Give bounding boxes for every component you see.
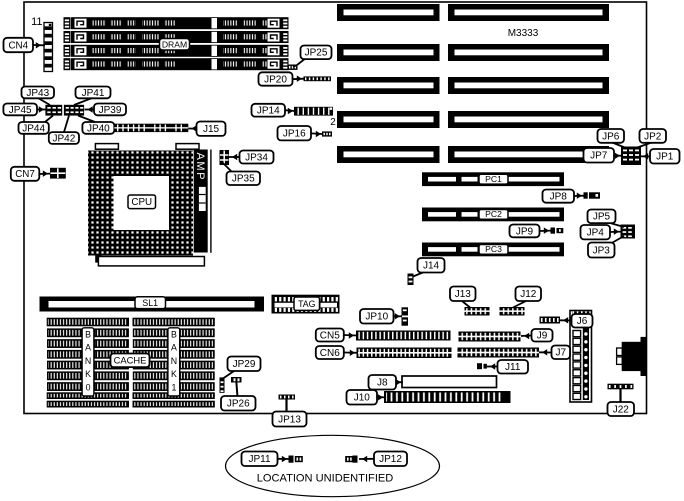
- svg-text:JP45: JP45: [9, 105, 32, 116]
- svg-text:J15: J15: [203, 124, 220, 135]
- svg-text:JP40: JP40: [87, 123, 110, 134]
- svg-text:JP26: JP26: [227, 399, 250, 410]
- svg-text:CN5: CN5: [320, 330, 340, 341]
- svg-text:CPU: CPU: [131, 197, 152, 208]
- svg-text:JP5: JP5: [593, 212, 611, 223]
- svg-text:JP39: JP39: [99, 105, 122, 116]
- svg-text:JP6: JP6: [602, 131, 620, 142]
- svg-text:J11: J11: [505, 362, 521, 373]
- svg-text:TAG: TAG: [298, 299, 316, 309]
- svg-text:JP35: JP35: [232, 174, 255, 185]
- svg-text:B: B: [171, 330, 177, 340]
- svg-text:J8: J8: [377, 378, 388, 389]
- svg-text:JP25: JP25: [305, 48, 328, 59]
- svg-text:J14: J14: [423, 261, 440, 272]
- svg-text:K: K: [85, 369, 91, 379]
- svg-text:JP9: JP9: [516, 226, 534, 237]
- svg-text:K: K: [171, 369, 177, 379]
- svg-text:JP10: JP10: [365, 312, 388, 323]
- svg-text:JP8: JP8: [550, 192, 568, 203]
- svg-text:AMP: AMP: [194, 153, 206, 182]
- svg-text:M3333: M3333: [508, 28, 539, 39]
- svg-text:JP20: JP20: [264, 74, 287, 85]
- svg-text:JP12: JP12: [379, 454, 402, 465]
- svg-text:JP4: JP4: [587, 228, 605, 239]
- svg-text:J13: J13: [455, 289, 472, 300]
- svg-text:JP44: JP44: [22, 123, 45, 134]
- svg-text:JP43: JP43: [26, 88, 49, 99]
- svg-text:JP7: JP7: [590, 151, 608, 162]
- svg-text:J22: J22: [613, 404, 630, 415]
- svg-text:CN7: CN7: [15, 169, 35, 180]
- svg-text:CN6: CN6: [320, 348, 340, 359]
- svg-text:PC1: PC1: [485, 174, 502, 184]
- svg-text:SL1: SL1: [142, 298, 158, 308]
- svg-text:PC2: PC2: [485, 209, 502, 219]
- svg-text:J12: J12: [520, 289, 537, 300]
- svg-text:A: A: [171, 343, 177, 353]
- svg-text:JP29: JP29: [233, 359, 256, 370]
- svg-text:N: N: [171, 356, 177, 366]
- svg-text:JP2: JP2: [644, 131, 662, 142]
- svg-text:JP42: JP42: [53, 133, 76, 144]
- svg-text:1: 1: [171, 382, 176, 392]
- svg-text:J6: J6: [577, 316, 588, 327]
- svg-text:11: 11: [31, 16, 42, 28]
- svg-text:DRAM: DRAM: [162, 40, 187, 50]
- svg-text:2: 2: [330, 117, 335, 128]
- svg-text:J7: J7: [555, 348, 566, 359]
- svg-text:A: A: [85, 343, 91, 353]
- svg-text:CN4: CN4: [8, 40, 28, 51]
- svg-text:JP41: JP41: [82, 88, 105, 99]
- svg-text:JP14: JP14: [257, 106, 280, 117]
- svg-text:PC3: PC3: [485, 244, 502, 254]
- svg-text:LOCATION UNIDENTIFIED: LOCATION UNIDENTIFIED: [257, 472, 394, 484]
- svg-text:JP16: JP16: [283, 129, 306, 140]
- svg-text:JP3: JP3: [593, 245, 611, 256]
- svg-text:B: B: [85, 330, 91, 340]
- svg-text:J9: J9: [537, 331, 548, 342]
- svg-text:JP11: JP11: [248, 454, 270, 465]
- svg-text:JP34: JP34: [245, 152, 268, 163]
- svg-text:CACHE: CACHE: [114, 355, 147, 366]
- svg-text:JP1: JP1: [656, 152, 674, 163]
- svg-text:0: 0: [86, 382, 91, 392]
- svg-text:JP13: JP13: [278, 414, 301, 425]
- svg-text:J10: J10: [354, 393, 371, 404]
- svg-text:N: N: [85, 356, 91, 366]
